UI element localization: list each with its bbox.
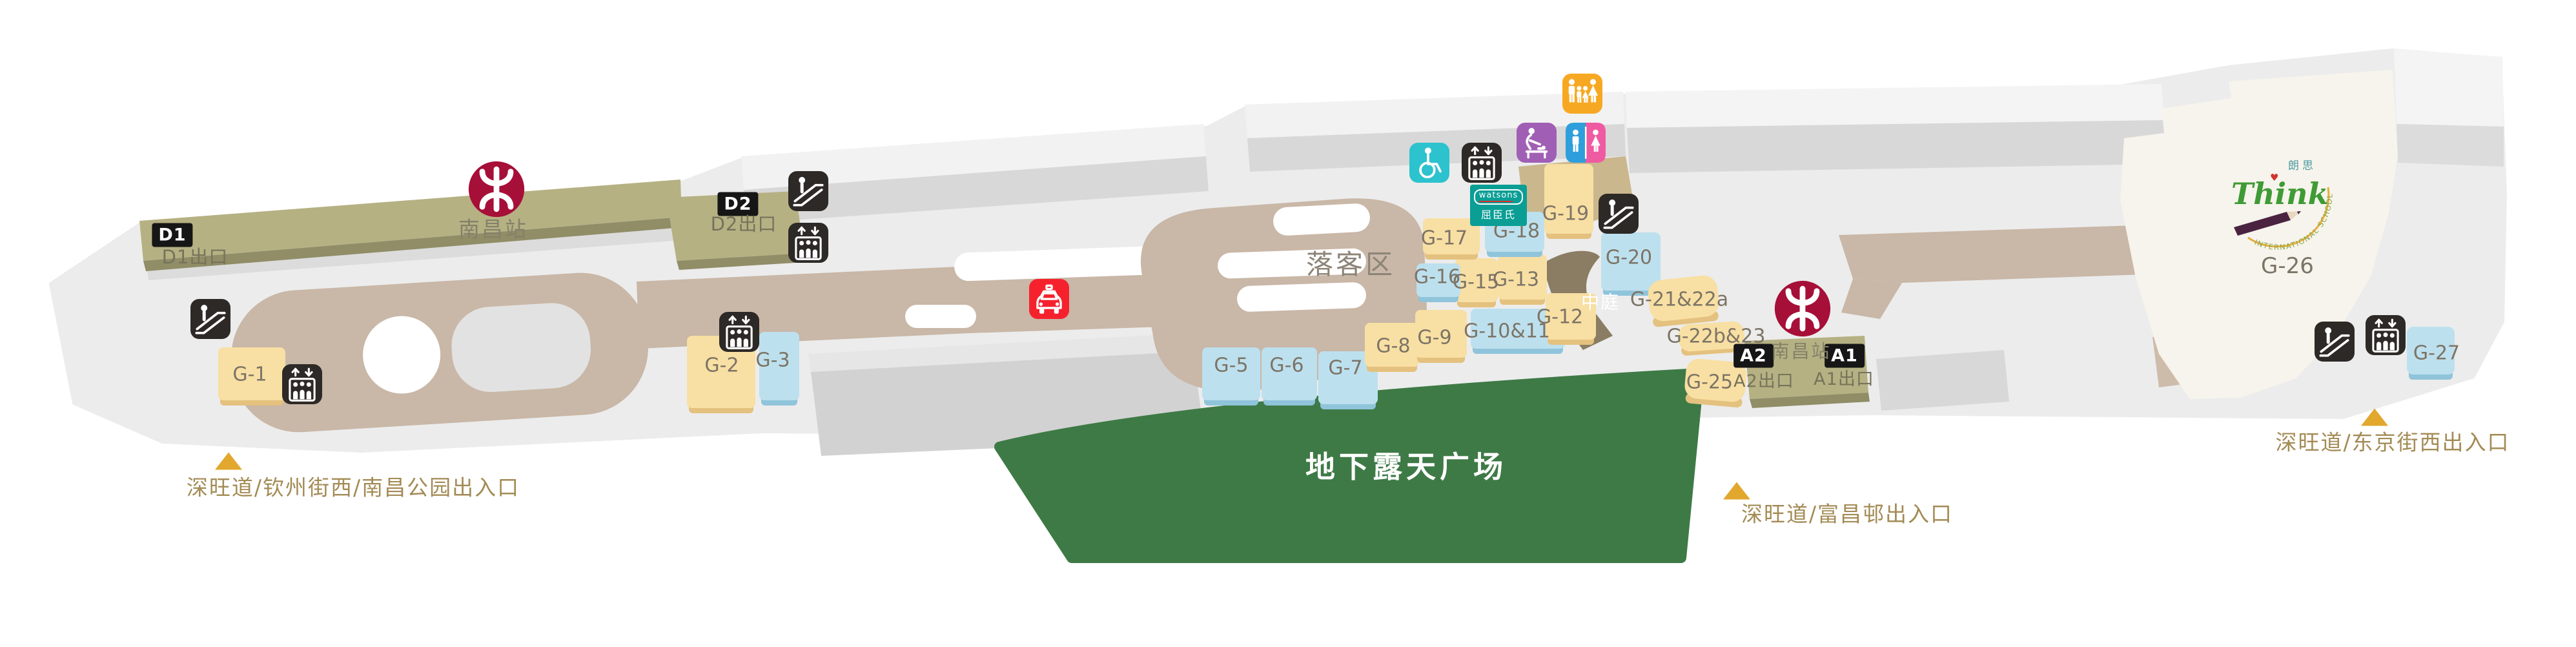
shop-label-g27: G-27 [2413, 343, 2460, 364]
exit-label-d1: D1出口 [162, 247, 229, 267]
think-pencil [2234, 211, 2301, 236]
escalator-icon [1599, 194, 1639, 234]
mtr-logo-icon [468, 161, 525, 218]
exit-label-a1: A1出口 [1814, 371, 1874, 389]
baby-care-icon [1517, 123, 1557, 163]
shop-label-g22b-23: G-22b&23 [1667, 326, 1766, 347]
shop-label-g6: G-6 [1269, 355, 1303, 376]
watsons-chinese: 屈臣氏 [1481, 206, 1516, 221]
escalator-icon [190, 299, 230, 339]
entrance-triangle-east [2361, 409, 2388, 426]
station-name-right: 南昌站 [1771, 342, 1831, 360]
lift-icon [1462, 143, 1502, 183]
escalator-icon [2315, 322, 2355, 362]
shop-label-g12: G-12 [1537, 307, 1583, 327]
entrance-triangle-west [215, 453, 242, 470]
wheelchair-icon [1409, 143, 1449, 183]
shop-label-g25: G-25 [1686, 372, 1733, 393]
shop-label-g1: G-1 [232, 364, 267, 385]
entrance-label-west: 深旺道/钦州街西/南昌公园出入口 [187, 477, 520, 500]
exit-badge-d1: D1 [152, 223, 192, 247]
shop-label-g16: G-16 [1414, 267, 1460, 287]
shop-g19 [1544, 164, 1593, 239]
exit-label-d2: D2出口 [711, 214, 777, 234]
watsons-wordmark: watsons [1474, 189, 1523, 205]
shop-label-g26: G-26 [2261, 255, 2314, 278]
entrance-label-east: 深旺道/东京街西出入口 [2275, 432, 2510, 455]
entrance-label-south: 深旺道/富昌邨出入口 [1741, 504, 1953, 526]
lift-icon [719, 312, 759, 352]
lift-icon [788, 223, 828, 263]
mtr-logo-icon [1774, 280, 1831, 337]
lift-icon [282, 364, 322, 404]
watsons-red-line [1479, 201, 1513, 202]
map-base [0, 0, 2576, 647]
station-name-left: 南昌站 [458, 219, 528, 241]
lift-icon [2366, 315, 2406, 355]
atrium-label: 中庭 [1581, 293, 1620, 311]
shop-label-g13: G-13 [1493, 269, 1539, 290]
shop-label-g21-22a: G-21&22a [1630, 289, 1728, 310]
watsons-latin: watsons [1479, 190, 1518, 200]
watsons-sign: watsons 屈臣氏 [1470, 185, 1527, 226]
plaza-label: 地下露天广场 [1305, 451, 1507, 482]
mall-floor-map: D1 D2 A2 A1 南昌站 D1出口 D2出口 南昌站 A2出口 A1出口 … [0, 0, 2576, 647]
shop-label-g8: G-8 [1376, 336, 1410, 356]
shop-label-g7: G-7 [1328, 358, 1362, 378]
exit-label-a2: A2出口 [1733, 373, 1794, 391]
shop-label-g5: G-5 [1214, 355, 1248, 376]
taxi-icon [1029, 279, 1069, 319]
toilets-icon [1566, 123, 1606, 163]
think-heart: ♥ [2270, 172, 2278, 183]
think-latin: Think [2231, 176, 2328, 211]
entrance-triangle-south [1723, 482, 1750, 500]
shop-label-g20: G-20 [1606, 247, 1652, 268]
shop-label-g19: G-19 [1542, 203, 1589, 224]
shop-label-g2: G-2 [704, 355, 739, 376]
family-toilet-icon [1562, 74, 1602, 114]
think-school-logo: 朗思 Think ♥ INTERNATIONAL SCHOOL [2222, 150, 2338, 253]
think-chinese: 朗思 [2288, 159, 2316, 172]
shop-label-g3: G-3 [755, 350, 790, 371]
dropoff-area-label: 落客区 [1306, 251, 1395, 279]
shop-label-g17: G-17 [1421, 228, 1467, 249]
escalator-icon [788, 171, 828, 211]
shop-label-g9: G-9 [1417, 327, 1451, 348]
